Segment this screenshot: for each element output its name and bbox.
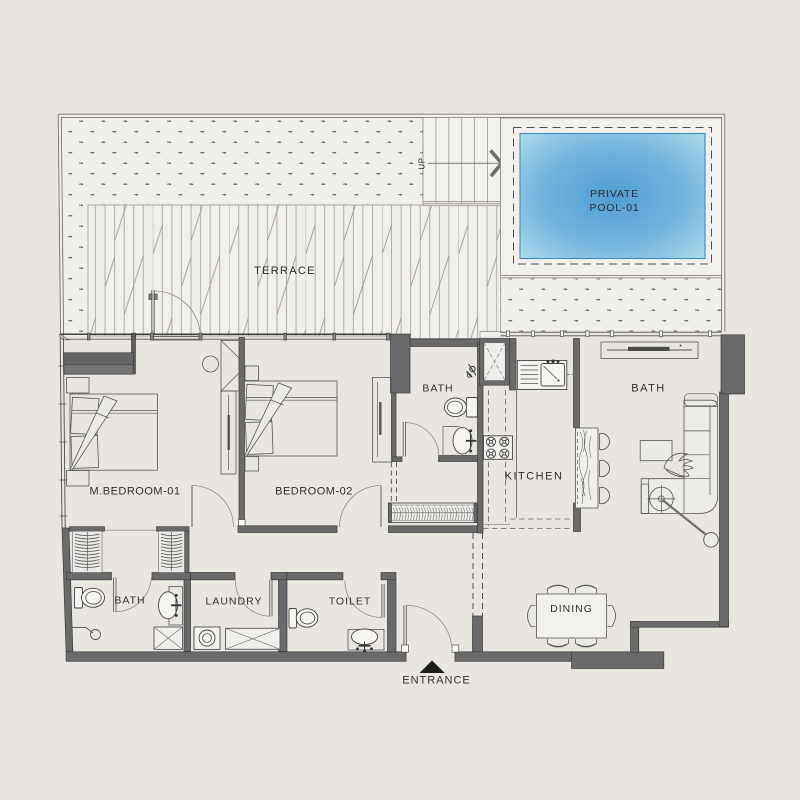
svg-text:TOILET: TOILET — [329, 596, 372, 608]
svg-text:UP: UP — [418, 157, 427, 169]
svg-text:TERRACE: TERRACE — [254, 265, 316, 277]
svg-text:POOL-01: POOL-01 — [590, 202, 640, 214]
svg-text:BATH: BATH — [114, 595, 145, 607]
svg-text:BATH: BATH — [422, 383, 453, 395]
svg-text:M.BEDROOM-01: M.BEDROOM-01 — [90, 486, 181, 498]
svg-text:KITCHEN: KITCHEN — [505, 471, 564, 483]
svg-text:LAUNDRY: LAUNDRY — [206, 596, 263, 608]
svg-text:PRIVATE: PRIVATE — [590, 188, 639, 200]
svg-text:BEDROOM-02: BEDROOM-02 — [275, 486, 353, 498]
svg-text:DINING: DINING — [550, 603, 593, 615]
svg-text:BATH: BATH — [631, 383, 666, 395]
svg-text:ENTRANCE: ENTRANCE — [402, 675, 471, 687]
